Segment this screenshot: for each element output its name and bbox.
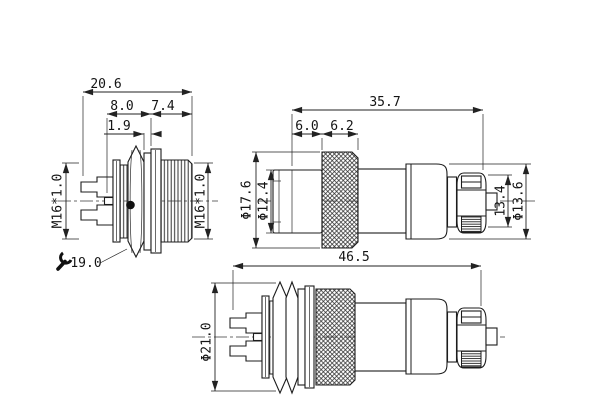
socket-solder-tab-lower bbox=[81, 205, 113, 225]
wrench-icon bbox=[58, 253, 71, 269]
assembly-clamp-plate bbox=[448, 312, 457, 362]
dim-plug-shell-diameter: Φ13.6 bbox=[512, 181, 527, 220]
plug-view: 35.7 6.0 6.2 Φ17.6 Φ12.4 bbox=[240, 95, 537, 248]
plug-clamp-plate bbox=[448, 177, 457, 227]
dim-socket-front-length: 7.4 bbox=[151, 99, 175, 114]
assembly-body bbox=[230, 282, 497, 393]
assembly-hex-nut-facet-1 bbox=[273, 282, 287, 393]
drawing-canvas: 20.6 8.0 7.4 1.9 M16*1.0 bbox=[0, 0, 600, 413]
assembly-cable-clamp bbox=[457, 308, 486, 368]
assembly-cable-tail bbox=[486, 328, 497, 345]
socket-dim-washer: 1.9 bbox=[104, 119, 160, 150]
connector-technical-drawing: 20.6 8.0 7.4 1.9 M16*1.0 bbox=[0, 0, 600, 413]
socket-body bbox=[81, 146, 192, 257]
socket-center-pin-dot bbox=[126, 201, 135, 210]
dim-socket-washer-thickness: 1.9 bbox=[107, 119, 130, 134]
assembly-solder-tab-upper bbox=[230, 313, 262, 333]
socket-rear-thread bbox=[120, 165, 128, 238]
assembly-view: 46.5 Φ21.0 bbox=[192, 250, 505, 393]
dim-socket-overall-length: 20.6 bbox=[90, 77, 121, 92]
plug-dim-total: 35.7 bbox=[292, 95, 483, 170]
plug-body-tube bbox=[358, 169, 406, 233]
label-socket-front-thread: M16*1.0 bbox=[194, 174, 209, 229]
socket-flat-washer bbox=[144, 153, 151, 250]
plug-rear-shell bbox=[406, 164, 447, 239]
dim-plug-coupling-diameter: Φ17.6 bbox=[240, 180, 255, 219]
plug-cable-clamp bbox=[457, 173, 486, 233]
plug-mating-barrel bbox=[273, 170, 322, 233]
plug-dim-segments: 6.0 6.2 bbox=[292, 119, 358, 150]
dim-socket-hex-size: 19.0 bbox=[70, 256, 101, 271]
plug-knurled-nut bbox=[322, 152, 358, 248]
socket-panel-view: 20.6 8.0 7.4 1.9 M16*1.0 bbox=[51, 77, 218, 271]
dim-plug-front-segment: 6.0 bbox=[295, 119, 318, 134]
socket-solder-tab-upper bbox=[81, 177, 113, 197]
dim-plug-mating-diameter: Φ12.4 bbox=[257, 181, 272, 220]
assembly-solder-tab-center bbox=[254, 334, 263, 341]
dim-plug-overall-length: 35.7 bbox=[369, 95, 400, 110]
dim-plug-knurl-segment: 6.2 bbox=[330, 119, 353, 134]
dim-assembly-overall-length: 46.5 bbox=[338, 250, 369, 265]
socket-lock-washer bbox=[151, 149, 161, 253]
assembly-solder-tab-lower bbox=[230, 341, 262, 361]
assembly-rear-shell bbox=[406, 299, 447, 374]
socket-solder-tab-center bbox=[105, 198, 114, 205]
assembly-body-tube bbox=[355, 303, 406, 371]
socket-front-thread-barrel bbox=[161, 160, 192, 242]
dim-assembly-max-diameter: Φ21.0 bbox=[200, 322, 215, 361]
socket-dim-front-thread: M16*1.0 bbox=[194, 163, 213, 239]
label-socket-rear-thread: M16*1.0 bbox=[51, 174, 66, 229]
dim-plug-clamp-height: 13.4 bbox=[494, 185, 509, 216]
socket-dim-hex: 19.0 bbox=[58, 249, 127, 271]
dim-socket-rear-length: 8.0 bbox=[110, 99, 133, 114]
plug-body bbox=[273, 152, 497, 248]
assembly-hex-nut-facet-2 bbox=[286, 282, 298, 393]
assembly-flat-washer bbox=[298, 289, 305, 385]
assembly-knurled-nut bbox=[316, 289, 355, 385]
